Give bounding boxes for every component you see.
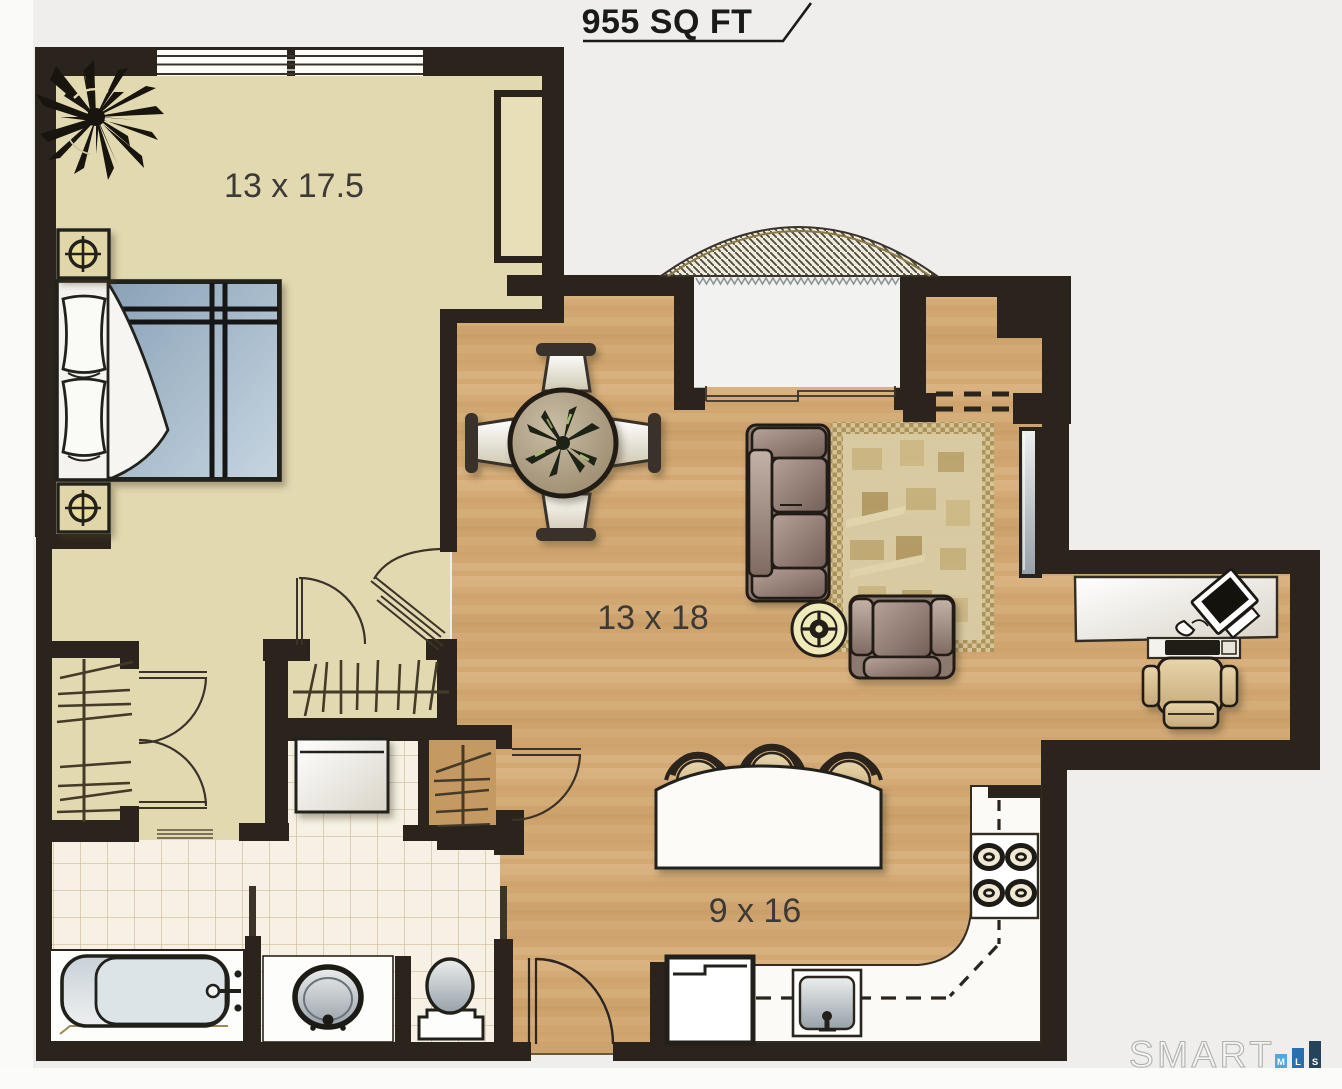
svg-text:M: M <box>1277 1057 1285 1068</box>
svg-text:L: L <box>1295 1057 1301 1068</box>
svg-text:13 x 17.5: 13 x 17.5 <box>224 167 364 205</box>
svg-text:9 x 16: 9 x 16 <box>709 892 802 930</box>
svg-text:13 x 18: 13 x 18 <box>597 599 709 637</box>
svg-text:SMART: SMART <box>1129 1034 1275 1075</box>
svg-text:955 SQ FT: 955 SQ FT <box>582 3 753 41</box>
svg-text:S: S <box>1312 1057 1318 1068</box>
